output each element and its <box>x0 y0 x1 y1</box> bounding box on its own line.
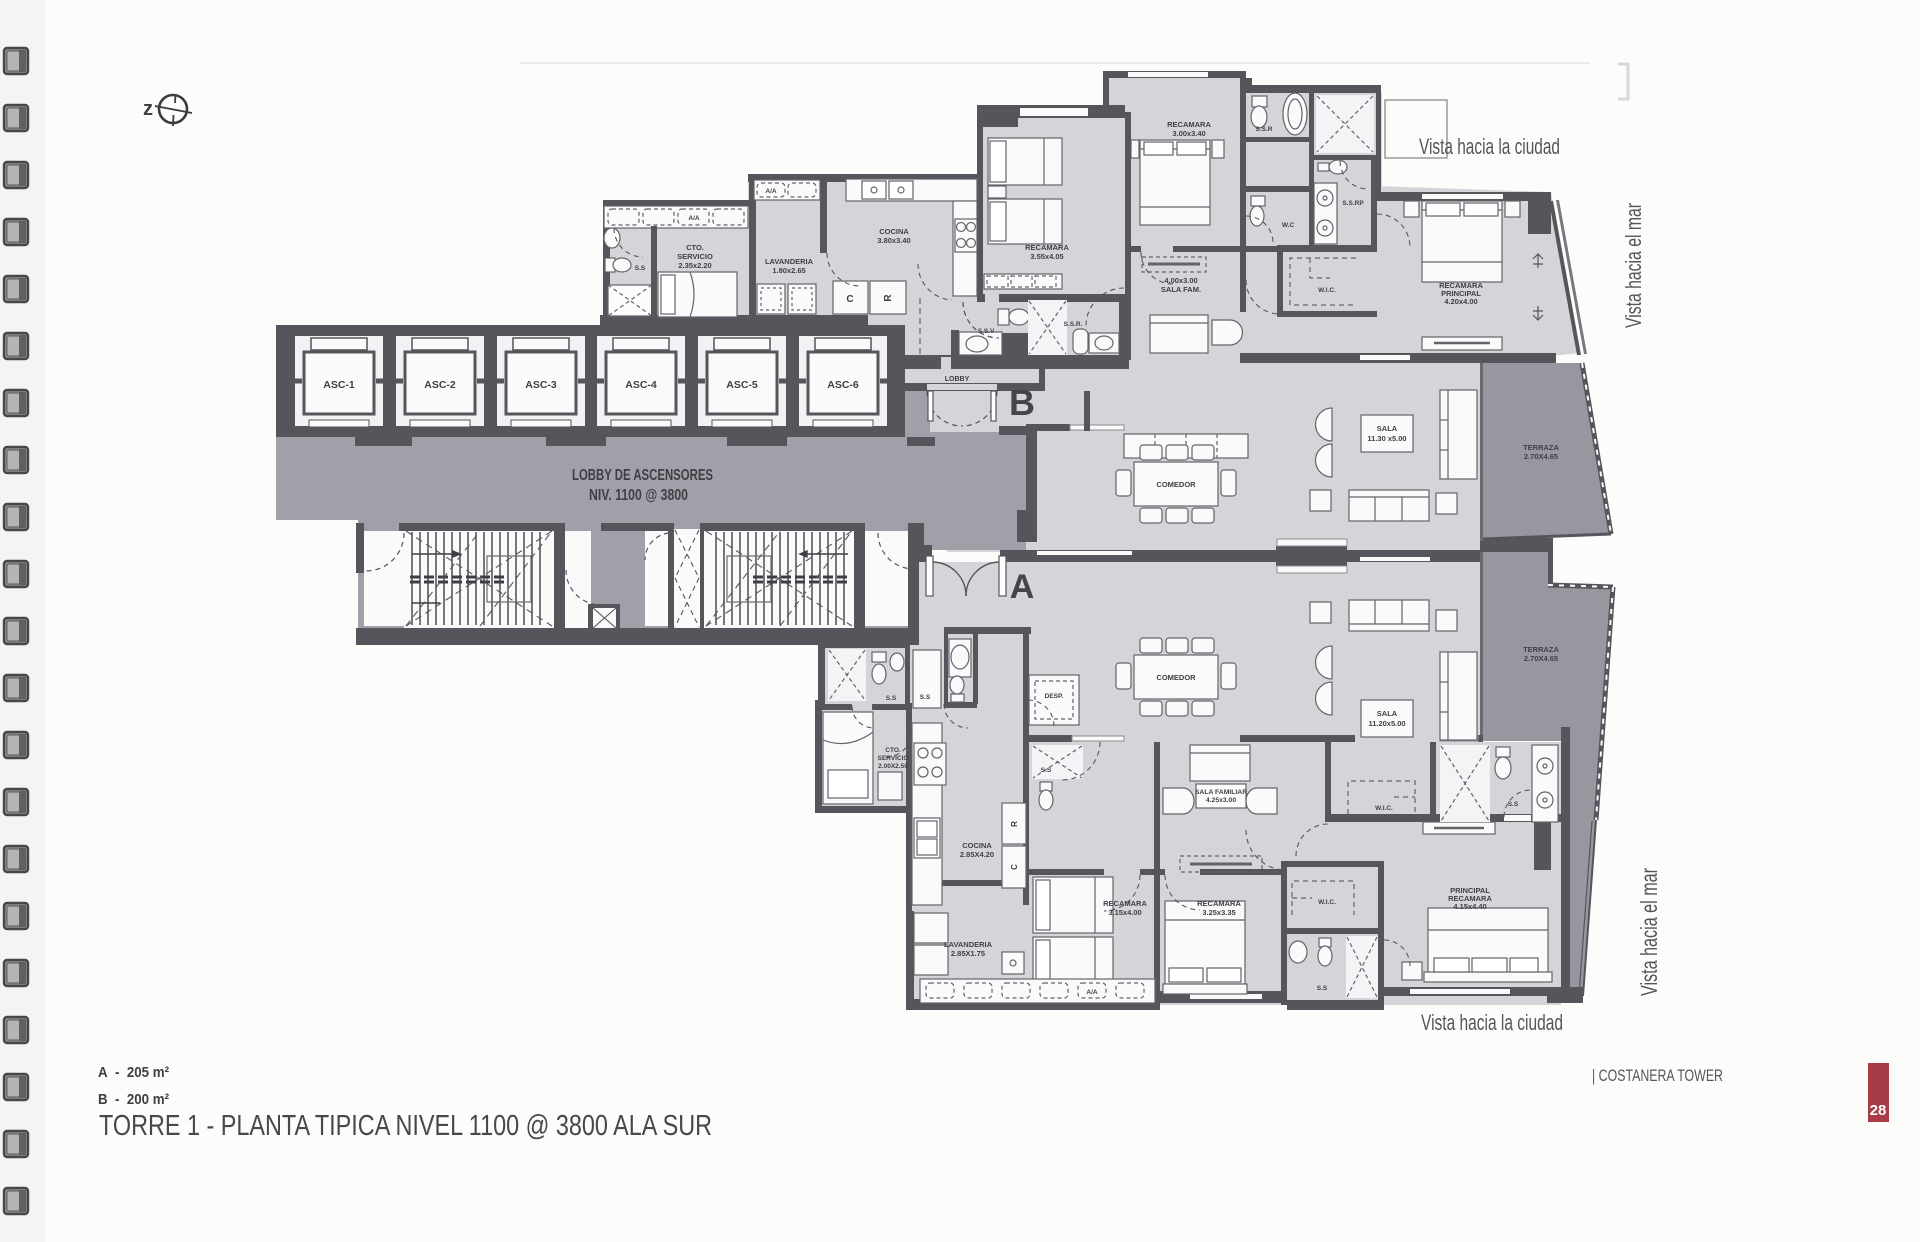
svg-text:Vista hacia la ciudad: Vista hacia la ciudad <box>1419 134 1560 159</box>
svg-text:2.00X2.50: 2.00X2.50 <box>878 763 908 770</box>
svg-text:A/A: A/A <box>765 188 777 195</box>
svg-text:C: C <box>1010 864 1019 870</box>
svg-text:S.S: S.S <box>1041 767 1052 774</box>
svg-text:ASC-2: ASC-2 <box>424 379 456 391</box>
svg-text:4.15x4.40: 4.15x4.40 <box>1453 902 1486 911</box>
svg-text:S.S.R: S.S.R <box>1256 126 1273 133</box>
svg-text:4.20x4.00: 4.20x4.00 <box>1444 297 1477 306</box>
svg-text:SALA: SALA <box>1377 709 1398 718</box>
svg-text:CTO.: CTO. <box>885 747 901 754</box>
svg-text:RECAMARA: RECAMARA <box>1103 899 1147 908</box>
svg-text:2.70X4.65: 2.70X4.65 <box>1524 654 1558 663</box>
svg-text:S.S: S.S <box>886 695 897 702</box>
svg-text:3.55x4.05: 3.55x4.05 <box>1030 252 1063 261</box>
svg-text:S.S: S.S <box>1317 985 1328 992</box>
svg-text:z: z <box>143 98 153 120</box>
svg-text:TERRAZA: TERRAZA <box>1523 443 1559 452</box>
svg-text:A - 205 m²: A - 205 m² <box>98 1064 169 1081</box>
svg-text:B: B <box>1009 382 1035 423</box>
svg-text:RECAMARA: RECAMARA <box>1167 120 1211 129</box>
svg-text:LAVANDERIA: LAVANDERIA <box>765 257 814 266</box>
svg-text:SALA FAMILIAR: SALA FAMILIAR <box>1195 789 1247 796</box>
svg-text:COMEDOR: COMEDOR <box>1156 673 1196 682</box>
svg-text:11.20x5.00: 11.20x5.00 <box>1368 719 1405 728</box>
svg-text:3.00x3.40: 3.00x3.40 <box>1172 129 1205 138</box>
svg-text:2.35x2.20: 2.35x2.20 <box>678 261 711 270</box>
svg-text:S.S.R.: S.S.R. <box>1064 321 1083 328</box>
svg-text:R: R <box>1010 821 1019 827</box>
svg-text:3.25x3.35: 3.25x3.35 <box>1202 908 1235 917</box>
svg-text:W.I.C.: W.I.C. <box>1318 899 1336 906</box>
svg-text:RECAMARA: RECAMARA <box>1197 899 1241 908</box>
svg-text:W.I.C.: W.I.C. <box>1375 805 1393 812</box>
svg-text:ASC-6: ASC-6 <box>827 379 859 391</box>
svg-text:2.85X1.75: 2.85X1.75 <box>951 949 985 958</box>
svg-text:COCINA: COCINA <box>962 841 992 850</box>
svg-text:LOBBY DE ASCENSORES: LOBBY DE ASCENSORES <box>572 467 713 484</box>
svg-text:W.I.C.: W.I.C. <box>1318 287 1336 294</box>
svg-text:B - 200 m²: B - 200 m² <box>98 1091 169 1108</box>
svg-text:3.80x3.40: 3.80x3.40 <box>877 236 910 245</box>
svg-text:| COSTANERA TOWER: | COSTANERA TOWER <box>1592 1066 1723 1085</box>
svg-text:Vista hacia la ciudad: Vista hacia la ciudad <box>1421 1010 1563 1035</box>
svg-text:A/A: A/A <box>688 215 700 222</box>
svg-text:ASC-4: ASC-4 <box>625 379 657 391</box>
svg-text:A/A: A/A <box>1086 989 1098 996</box>
svg-text:LOBBY: LOBBY <box>945 376 970 383</box>
svg-text:4.25x3.00: 4.25x3.00 <box>1206 797 1236 804</box>
svg-text:ASC-3: ASC-3 <box>525 379 557 391</box>
svg-text:R: R <box>883 294 894 302</box>
svg-text:S.S: S.S <box>1508 801 1519 808</box>
svg-text:W.C: W.C <box>1282 222 1295 229</box>
svg-text:CTO.: CTO. <box>686 243 704 252</box>
svg-text:C: C <box>846 294 853 305</box>
svg-text:S.S: S.S <box>920 694 931 701</box>
svg-text:1.80x2.65: 1.80x2.65 <box>772 266 805 275</box>
svg-text:TERRAZA: TERRAZA <box>1523 645 1559 654</box>
svg-text:ASC-5: ASC-5 <box>726 379 758 391</box>
svg-text:S.S: S.S <box>635 265 646 272</box>
svg-text:11.30 x5.00: 11.30 x5.00 <box>1367 434 1406 443</box>
svg-text:LAVANDERIA: LAVANDERIA <box>944 940 993 949</box>
svg-text:S.S.RP: S.S.RP <box>1342 200 1364 207</box>
svg-text:Vista hacia el mar: Vista hacia el mar <box>1621 203 1646 328</box>
svg-text:2.85X4.20: 2.85X4.20 <box>960 850 994 859</box>
svg-text:SALA: SALA <box>1377 424 1398 433</box>
svg-text:2.70X4.65: 2.70X4.65 <box>1524 452 1558 461</box>
svg-text:DESP.: DESP. <box>1045 693 1064 700</box>
svg-text:ASC-1: ASC-1 <box>323 379 355 391</box>
svg-text:Vista hacia el mar: Vista hacia el mar <box>1636 868 1662 996</box>
svg-text:3.15x4.00: 3.15x4.00 <box>1108 908 1141 917</box>
svg-text:A: A <box>1010 568 1035 606</box>
svg-text:COMEDOR: COMEDOR <box>1156 480 1196 489</box>
svg-text:28: 28 <box>1870 1102 1887 1119</box>
svg-text:SERVICIO: SERVICIO <box>677 252 713 261</box>
svg-text:SERVICIO: SERVICIO <box>878 755 909 762</box>
svg-text:4.00x3.00: 4.00x3.00 <box>1164 276 1197 285</box>
svg-text:RECAMARA: RECAMARA <box>1025 243 1069 252</box>
svg-text:SALA FAM.: SALA FAM. <box>1161 285 1201 294</box>
svg-text:COCINA: COCINA <box>879 227 909 236</box>
svg-text:NIV. 1100 @ 3800: NIV. 1100 @ 3800 <box>589 487 688 504</box>
svg-text:TORRE 1 - PLANTA TIPICA NIVEL: TORRE 1 - PLANTA TIPICA NIVEL 1100 @ 380… <box>99 1110 712 1142</box>
svg-text:S.S.V: S.S.V <box>978 328 995 335</box>
